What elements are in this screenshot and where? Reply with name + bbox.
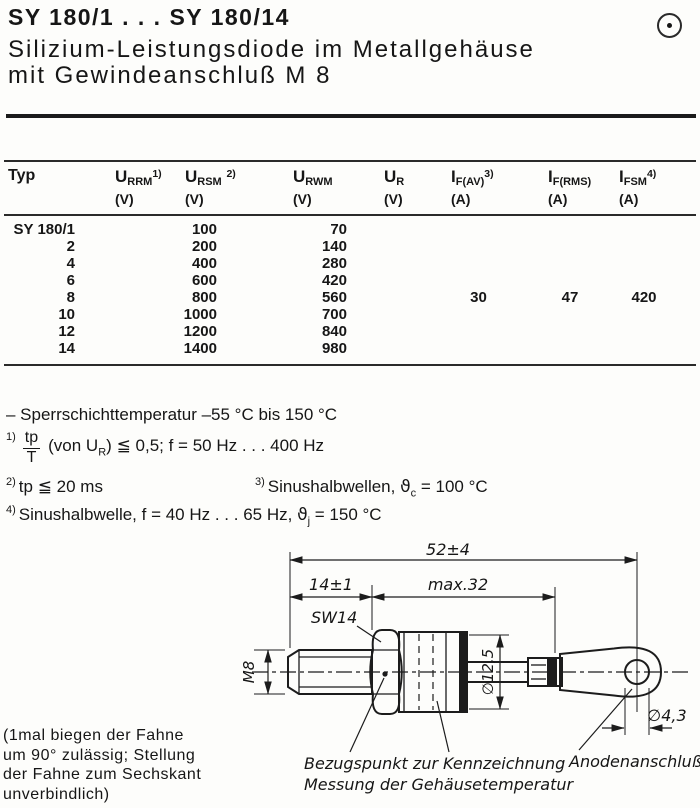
cell-ifsm: 420: [614, 289, 696, 306]
cell-urwm-ur: 420: [261, 272, 431, 289]
cell-urrm-ursm: 1400: [109, 340, 261, 365]
reference-point-label-line1: Bezugspunkt zur: [304, 754, 439, 773]
note-temperature-range: – Sperrschichttemperatur –55 °C bis 150 …: [6, 405, 337, 425]
cell-urwm-ur: 560: [261, 289, 431, 306]
subtitle-line-2: mit Gewindeanschluß M 8: [8, 62, 331, 90]
cell-ifrms: [526, 272, 614, 289]
col-header-ur: UR(V): [351, 161, 431, 215]
col-header-ifav: IF(AV)3)(A): [431, 161, 526, 215]
anode-flag-terminal: [560, 644, 661, 712]
marking-label: Kennzeichnung: [443, 754, 565, 773]
header-rule: [6, 114, 696, 118]
col-header-ifsm: IFSM4)(A): [614, 161, 696, 215]
note-1: 1) tp T (von UR) ≦ 0,5; f = 50 Hz . . . …: [6, 429, 324, 466]
cell-ifav: 30: [431, 289, 526, 306]
cell-ifav: [431, 323, 526, 340]
circled-dot-center: [667, 23, 672, 28]
cell-ifrms: [526, 306, 614, 323]
cell-ifsm: [614, 340, 696, 365]
table-row: 12 1200 840: [4, 323, 696, 340]
cell-urrm-ursm: 1200: [109, 323, 261, 340]
ratings-table: Typ URRM1)(V) URSM 2)(V) URWM(V) UR(V) I…: [4, 160, 696, 366]
cell-ifsm: [614, 255, 696, 272]
note-1-marker: 1): [6, 431, 16, 443]
table-row: 4 400 280: [4, 255, 696, 272]
dim-stud-label: 14±1: [309, 575, 353, 594]
cell-urrm-ursm: 400: [109, 255, 261, 272]
footnote-line: um 90° zulässig; Stellung: [3, 746, 201, 766]
reference-point-label-line2: Messung der Gehäusetemperatur: [304, 775, 575, 794]
dim-overall-label: 52±4: [426, 540, 470, 559]
bending-footnote: (1mal biegen der Fahne um 90° zulässig; …: [3, 726, 201, 804]
cell-urrm-ursm: 200: [109, 238, 261, 255]
cell-ifsm: [614, 272, 696, 289]
table-row: 6 600 420: [4, 272, 696, 289]
cell-typ: 12: [4, 323, 109, 340]
wrench-size-label: SW14: [311, 608, 357, 627]
cell-typ: SY 180/1: [4, 215, 109, 238]
cell-urrm-ursm: 1000: [109, 306, 261, 323]
table-row: 14 1400 980: [4, 340, 696, 365]
cell-ifsm: [614, 306, 696, 323]
note-2: 2)tp ≦ 20 ms: [6, 477, 103, 496]
cell-urrm-ursm: 100: [109, 215, 261, 238]
table-row: 10 1000 700: [4, 306, 696, 323]
cell-ifav: [431, 255, 526, 272]
datasheet-page: SY 180/1 . . . SY 180/14 Silizium-Leistu…: [0, 0, 700, 808]
col-header-urrm: URRM1)(V): [109, 161, 181, 215]
note-2-3: 2)tp ≦ 20 ms 3)Sinushalbwellen, ϑc = 100…: [6, 476, 103, 497]
cell-urwm-ur: 140: [261, 238, 431, 255]
anode-connection-label: Anodenanschluß: [568, 752, 700, 771]
cell-urrm-ursm: 800: [109, 289, 261, 306]
cell-typ: 10: [4, 306, 109, 323]
subtitle-line-1: Silizium-Leistungsdiode im Metallgehäuse: [8, 36, 535, 64]
table-row: 8 800 560 30 47 420: [4, 289, 696, 306]
cell-urwm-ur: 70: [261, 215, 431, 238]
cell-ifrms: [526, 215, 614, 238]
cell-ifrms: [526, 255, 614, 272]
cell-typ: 2: [4, 238, 109, 255]
dim-case-label: max.32: [428, 575, 488, 594]
page-title: SY 180/1 . . . SY 180/14: [8, 4, 290, 31]
cell-ifav: [431, 340, 526, 365]
cell-urwm-ur: 980: [261, 340, 431, 365]
table-row: 2 200 140: [4, 238, 696, 255]
cell-typ: 4: [4, 255, 109, 272]
callout-labels: Bezugspunkt zur Messung der Gehäusetempe…: [304, 752, 700, 794]
col-header-ifrms: IF(RMS)(A): [526, 161, 614, 215]
col-header-ursm: URSM 2)(V): [181, 161, 261, 215]
cell-ifsm: [614, 238, 696, 255]
cell-ifav: [431, 215, 526, 238]
note-1-text: (von UR) ≦ 0,5; f = 50 Hz . . . 400 Hz: [48, 436, 324, 458]
cell-ifsm: [614, 323, 696, 340]
cell-typ: 14: [4, 340, 109, 365]
cell-ifrms: [526, 340, 614, 365]
footnote-line: der Fahne zum Sechskant: [3, 765, 201, 785]
cell-ifrms: [526, 238, 614, 255]
cell-ifav: [431, 272, 526, 289]
cell-ifrms: [526, 323, 614, 340]
cell-ifav: [431, 306, 526, 323]
cell-ifsm: [614, 215, 696, 238]
cell-urrm-ursm: 600: [109, 272, 261, 289]
footnote-line: (1mal biegen der Fahne: [3, 726, 201, 746]
cell-urwm-ur: 280: [261, 255, 431, 272]
cell-typ: 6: [4, 272, 109, 289]
footnote-line: unverbindlich): [3, 785, 201, 805]
circled-dot-icon: [657, 13, 682, 38]
wrench-size-callout: SW14: [311, 608, 381, 642]
cell-urwm-ur: 700: [261, 306, 431, 323]
hole-diameter-label: ∅4,3: [647, 706, 686, 725]
note-3: 3)Sinushalbwellen, ϑc = 100 °C: [255, 476, 488, 499]
cell-urwm-ur: 840: [261, 323, 431, 340]
note-4: 4)Sinushalbwelle, f = 40 Hz . . . 65 Hz,…: [6, 504, 382, 527]
table-header-row: Typ URRM1)(V) URSM 2)(V) URWM(V) UR(V) I…: [4, 161, 696, 215]
cell-ifav: [431, 238, 526, 255]
table-row: SY 180/1 100 70: [4, 215, 696, 238]
cell-typ: 8: [4, 289, 109, 306]
col-header-urwm: URWM(V): [261, 161, 351, 215]
col-header-typ: Typ: [4, 161, 109, 215]
cell-ifrms: 47: [526, 289, 614, 306]
fraction-tp-T: tp T: [23, 429, 40, 466]
